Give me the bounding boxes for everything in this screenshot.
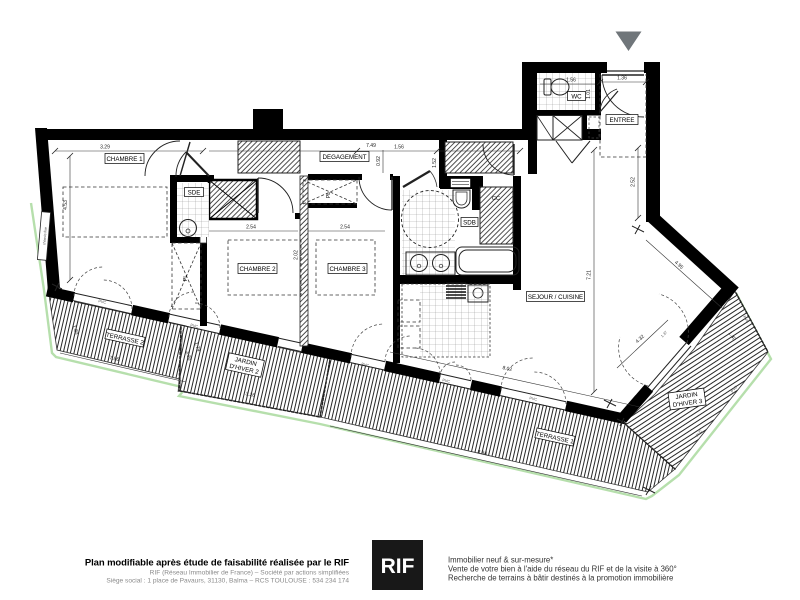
svg-text:PL: PL xyxy=(326,192,332,198)
svg-text:SDB: SDB xyxy=(463,220,476,227)
svg-text:CC: CC xyxy=(492,196,500,202)
svg-text:2.02: 2.02 xyxy=(294,250,300,260)
svg-text:CHAMBRE 3: CHAMBRE 3 xyxy=(329,266,366,273)
svg-text:CHAMBRE 1: CHAMBRE 1 xyxy=(106,156,143,163)
svg-text:2.54: 2.54 xyxy=(246,225,256,231)
svg-text:SEJOUR / CUISINE: SEJOUR / CUISINE xyxy=(528,294,583,301)
svg-text:3.29: 3.29 xyxy=(100,145,110,151)
svg-text:4.53: 4.53 xyxy=(63,200,69,210)
svg-text:1.52: 1.52 xyxy=(432,158,438,168)
svg-text:2.54: 2.54 xyxy=(340,225,350,231)
svg-text:7.21: 7.21 xyxy=(587,270,593,280)
svg-text:1.56: 1.56 xyxy=(394,145,404,151)
svg-text:Recherche de terrains à bâtir: Recherche de terrains à bâtir destinés à… xyxy=(448,574,673,583)
svg-text:Plan modifiable après étude de: Plan modifiable après étude de faisabili… xyxy=(85,558,349,569)
svg-text:7.49: 7.49 xyxy=(366,143,376,149)
svg-text:1.01: 1.01 xyxy=(586,89,592,99)
svg-text:2.52: 2.52 xyxy=(631,177,637,187)
svg-text:RIF (Réseau Immobilier de Fran: RIF (Réseau Immobilier de France) – Soci… xyxy=(150,570,350,577)
svg-text:SDE: SDE xyxy=(188,190,201,197)
svg-text:1.36: 1.36 xyxy=(617,76,627,82)
svg-text:DEGAGEMENT: DEGAGEMENT xyxy=(322,154,366,161)
svg-text:Siège social : 1 place de Pava: Siège social : 1 place de Pavaurs, 31130… xyxy=(106,578,349,585)
svg-text:CHAMBRE 2: CHAMBRE 2 xyxy=(239,266,276,273)
svg-text:Immobilier neuf & sur-mesure*: Immobilier neuf & sur-mesure* xyxy=(448,556,553,565)
svg-text:Vente de votre bien à l'aide d: Vente de votre bien à l'aide du réseau d… xyxy=(448,565,677,574)
svg-text:RIF: RIF xyxy=(381,555,415,578)
svg-text:ENTREE: ENTREE xyxy=(609,117,634,124)
svg-text:0.92: 0.92 xyxy=(376,156,382,166)
svg-text:WC: WC xyxy=(571,94,582,101)
svg-text:1.56: 1.56 xyxy=(566,78,576,84)
svg-text:PL: PL xyxy=(183,275,189,282)
